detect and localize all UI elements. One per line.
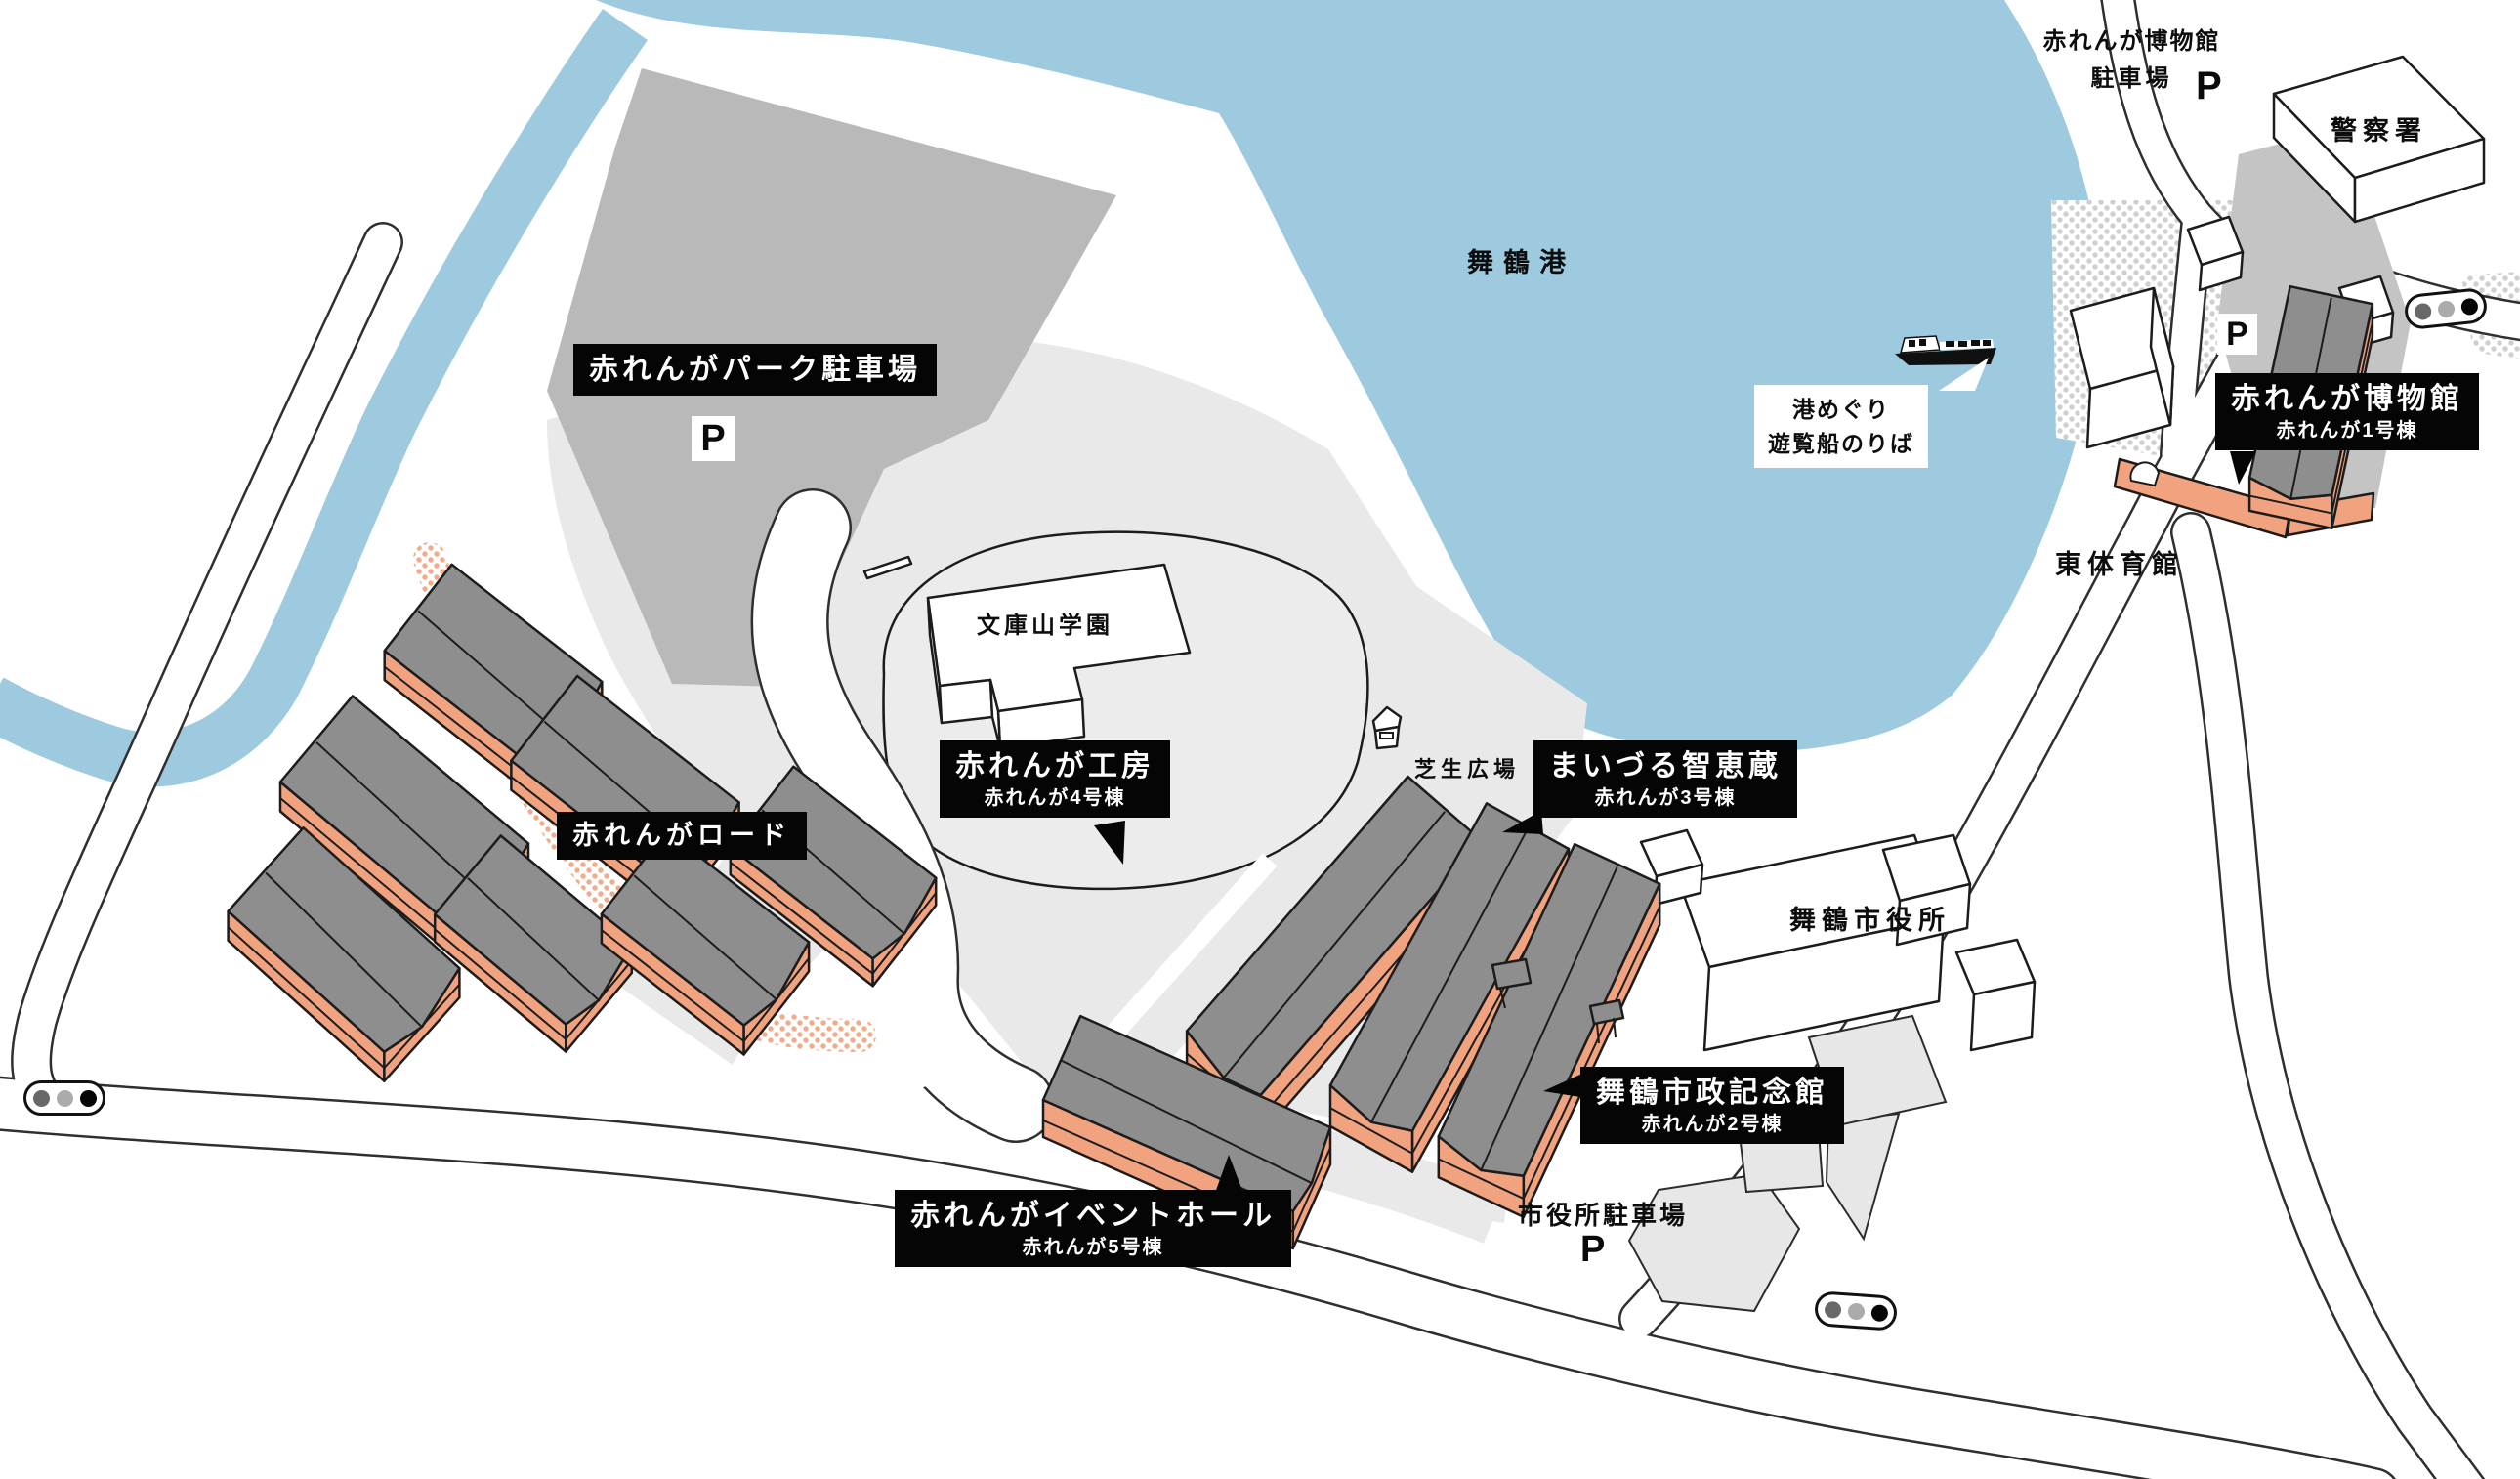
label-memorial-subtitle: 赤れんが2号棟 — [1596, 1112, 1828, 1137]
sea-label: 舞鶴港 — [1467, 241, 1575, 279]
label-museum: 赤れんが博物館 赤れんが1号棟 — [2215, 373, 2479, 450]
label-chiekura-title: まいづる智恵蔵 — [1549, 747, 1782, 785]
label-brick-road: 赤れんがロード — [557, 812, 807, 860]
label-chiekura-subtitle: 赤れんが3号棟 — [1549, 785, 1782, 811]
parking-p-marker-park: P — [692, 416, 735, 461]
label-museum-title: 赤れんが博物館 — [2231, 380, 2463, 418]
p-glyph: P — [700, 418, 725, 460]
p-glyph: P — [2226, 316, 2248, 354]
label-event-hall: 赤れんがイベントホール 赤れんが5号棟 — [895, 1190, 1291, 1267]
label-workshop: 赤れんが工房 赤れんが4号棟 — [940, 740, 1170, 818]
label-brick-road-title: 赤れんがロード — [572, 819, 791, 853]
parking-p-marker-pier: P — [2217, 314, 2257, 355]
label-workshop-subtitle: 赤れんが4号棟 — [955, 785, 1155, 811]
maizuru-red-brick-park-map: 舞鶴港 赤れんがパーク駐車場 P 赤れんがロード 赤れんが工房 赤れんが4号棟 … — [0, 0, 2520, 1479]
cruise-bubble-line2: 遊覧船のりば — [1768, 427, 1914, 461]
p-glyph: P — [1580, 1229, 1605, 1270]
label-event-hall-title: 赤れんがイベントホール — [910, 1197, 1276, 1235]
label-park-parking: 赤れんがパーク駐車場 — [573, 344, 937, 396]
city-hall-label: 舞鶴市役所 — [1789, 899, 1951, 937]
parking-p-marker-museum-lot: P — [2196, 64, 2222, 108]
traffic-light-icon — [1814, 1290, 1898, 1331]
label-chiekura: まいづる智恵蔵 赤れんが3号棟 — [1533, 740, 1797, 818]
lawn-label: 芝生広場 — [1414, 752, 1520, 783]
city-hall-parking-label: 市役所駐車場 — [1518, 1196, 1688, 1232]
label-memorial-title: 舞鶴市政記念館 — [1596, 1074, 1828, 1112]
label-event-hall-subtitle: 赤れんが5号棟 — [910, 1235, 1276, 1260]
p-glyph: P — [2196, 64, 2222, 107]
label-memorial: 舞鶴市政記念館 赤れんが2号棟 — [1580, 1067, 1844, 1144]
traffic-light-icon — [23, 1080, 105, 1116]
police-label: 警察署 — [2331, 109, 2427, 148]
city-hall-parking-lots — [1629, 1016, 1946, 1311]
cruise-bubble: 港めぐり 遊覧船のりば — [1754, 385, 1928, 468]
museum-parking-line1: 赤れんが博物館 — [2027, 23, 2237, 61]
cruise-bubble-line1: 港めぐり — [1768, 393, 1914, 427]
parking-p-marker-city-hall: P — [1580, 1229, 1605, 1271]
label-park-parking-title: 赤れんがパーク駐車場 — [589, 351, 921, 389]
label-workshop-title: 赤れんが工房 — [955, 747, 1155, 785]
gym-label: 東体育館 — [2055, 543, 2184, 581]
label-museum-subtitle: 赤れんが1号棟 — [2231, 418, 2463, 444]
school-label: 文庫山学園 — [977, 606, 1113, 640]
